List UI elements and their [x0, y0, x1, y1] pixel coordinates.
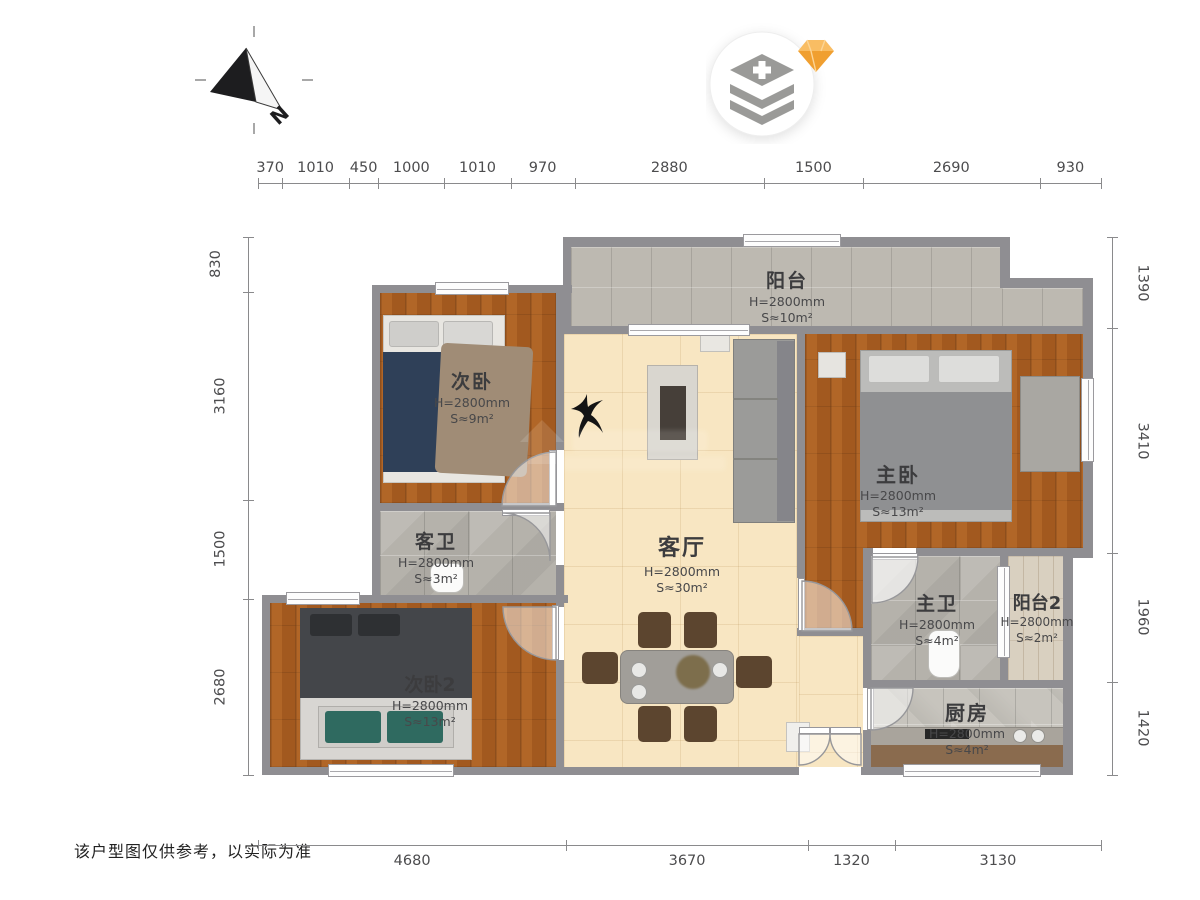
- compass: N: [190, 20, 320, 140]
- dimension-segment: 1420: [1113, 682, 1157, 775]
- dimension-value: 1000: [393, 160, 430, 176]
- pillow: [389, 321, 439, 347]
- dimension-segment: 830: [208, 237, 248, 292]
- dimension-row-bottom: 4680 3670 1320 3130: [258, 845, 1101, 874]
- wall: [372, 503, 380, 603]
- dimension-segment: 1960: [1113, 553, 1157, 682]
- room-height: H=2800mm: [899, 617, 975, 633]
- room-area: S≈10m²: [749, 310, 825, 326]
- dimension-segment: 3410: [1113, 328, 1157, 552]
- dimension-row-top: 370 1010 450 1000 1010 970 2880 1500 269…: [258, 153, 1101, 184]
- dimension-value: 3410: [1135, 422, 1151, 459]
- window: [1081, 378, 1094, 462]
- room-name: 客厅: [644, 535, 720, 564]
- room-name: 主卧: [860, 462, 936, 488]
- dimension-segment: 1010: [444, 153, 510, 183]
- dimension-segment: 3670: [566, 846, 808, 874]
- dimension-value: 1390: [1135, 264, 1151, 301]
- room-height: H=2800mm: [929, 726, 1005, 742]
- wall: [564, 767, 799, 775]
- sofa-seam: [733, 398, 778, 400]
- dimension-value: 1010: [297, 160, 334, 176]
- wall: [1063, 548, 1073, 775]
- room-label-living-room: 客厅 H=2800mm S≈30m²: [644, 535, 720, 596]
- wall: [863, 548, 871, 688]
- plate: [631, 662, 647, 678]
- room-name: 阳台: [749, 269, 825, 294]
- dimension-segment: 450: [349, 153, 379, 183]
- dimension-segment: 1320: [808, 846, 895, 874]
- dimension-value: 3160: [212, 377, 228, 414]
- dimension-value: 970: [529, 160, 557, 176]
- dimension-value: 370: [256, 160, 284, 176]
- room-height: H=2800mm: [398, 555, 474, 571]
- chair: [736, 656, 772, 688]
- pillow: [938, 355, 1000, 383]
- wall: [556, 660, 564, 775]
- room-area: S≈30m²: [644, 580, 720, 596]
- wardrobe: [1020, 376, 1080, 472]
- door-leaf: [502, 509, 550, 516]
- blanket: [383, 352, 441, 472]
- sofa-seam: [733, 458, 778, 460]
- table-plant: [676, 655, 710, 689]
- room-height: H=2800mm: [1001, 615, 1074, 631]
- watermark-text-blur: [572, 430, 708, 452]
- dimension-value: 4680: [394, 853, 431, 869]
- dimension-value: 2880: [651, 160, 688, 176]
- room-label-guest-bath: 客卫 H=2800mm S≈3m²: [398, 530, 474, 587]
- room-label-balcony2: 阳台2 H=2800mm S≈2m²: [1001, 592, 1074, 647]
- room-area: S≈4m²: [929, 742, 1005, 758]
- room-name: 阳台2: [1001, 592, 1074, 615]
- room-name: 次卧: [434, 370, 510, 395]
- room-name: 厨房: [929, 700, 1005, 726]
- room-label-kitchen: 厨房 H=2800mm S≈4m²: [929, 700, 1005, 759]
- room-label-balcony: 阳台 H=2800mm S≈10m²: [749, 269, 825, 326]
- cushion: [325, 711, 381, 743]
- wall: [863, 730, 871, 775]
- dimension-value: 1010: [459, 160, 496, 176]
- wall: [1000, 278, 1093, 288]
- wall: [262, 595, 270, 775]
- watermark-house-icon: [518, 416, 566, 468]
- window: [743, 234, 841, 247]
- dimension-value: 1420: [1135, 710, 1151, 747]
- room-area: S≈3m²: [398, 571, 474, 587]
- dimension-segment: 3130: [895, 846, 1101, 874]
- room-area: S≈9m²: [434, 411, 510, 427]
- dimension-value: 2690: [933, 160, 970, 176]
- floor-plan-page: N: [0, 0, 1200, 900]
- wall: [797, 628, 865, 636]
- dimension-value: 2680: [212, 668, 228, 705]
- dimension-value: 3670: [669, 853, 706, 869]
- room-height: H=2800mm: [749, 294, 825, 310]
- plate: [631, 684, 647, 700]
- room-height: H=2800mm: [434, 395, 510, 411]
- pillow: [868, 355, 930, 383]
- dimension-segment: 1000: [378, 153, 444, 183]
- sliding-door-window: [628, 324, 750, 336]
- dimension-segment: 1500: [764, 153, 863, 183]
- pillow: [358, 614, 400, 636]
- room-name: 次卧2: [392, 673, 468, 698]
- window: [328, 764, 454, 777]
- door-leaf: [799, 727, 830, 734]
- pillow: [310, 614, 352, 636]
- room-label-bedroom2: 次卧 H=2800mm S≈9m²: [434, 370, 510, 427]
- door-leaf: [552, 605, 559, 660]
- dimension-value: 1960: [1135, 599, 1151, 636]
- sink: [1013, 729, 1027, 743]
- dimension-value: 3130: [979, 853, 1016, 869]
- dimension-value: 1500: [212, 531, 228, 568]
- room-area: S≈4m²: [899, 633, 975, 649]
- door-leaf: [830, 727, 861, 734]
- wall: [797, 326, 805, 578]
- window: [435, 282, 509, 295]
- balcony-floor-ext: [1002, 288, 1083, 326]
- room-label-master-bedroom: 主卧 H=2800mm S≈13m²: [860, 462, 936, 521]
- dimension-column-left: 830 3160 1500 2680: [208, 237, 249, 775]
- room-height: H=2800mm: [392, 698, 468, 714]
- dimension-segment: 1390: [1113, 237, 1157, 328]
- chair: [684, 612, 717, 648]
- master-bedroom-notch-floor: [805, 548, 863, 628]
- door-leaf: [872, 553, 918, 560]
- chair: [638, 612, 671, 648]
- window: [286, 592, 360, 605]
- dimension-segment: 370: [258, 153, 282, 183]
- room-height: H=2800mm: [860, 488, 936, 504]
- dimension-segment: 930: [1040, 153, 1101, 183]
- dimension-segment: 4680: [258, 846, 566, 874]
- room-name: 客卫: [398, 530, 474, 555]
- dimension-segment: 1010: [282, 153, 348, 183]
- room-label-bedroom3: 次卧2 H=2800mm S≈13m²: [392, 673, 468, 730]
- room-area: S≈13m²: [860, 504, 936, 520]
- room-area: S≈2m²: [1001, 631, 1074, 647]
- watermark: [518, 416, 566, 468]
- dimension-column-right: 1390 3410 1960 1420: [1112, 237, 1157, 775]
- dimension-value: 1500: [795, 160, 832, 176]
- dimension-segment: 2690: [863, 153, 1040, 183]
- chair: [638, 706, 671, 742]
- dimension-segment: 2680: [208, 599, 248, 775]
- door-leaf: [867, 688, 874, 730]
- dimension-segment: 3160: [208, 292, 248, 500]
- watermark-text-blur: [562, 456, 726, 471]
- wall: [916, 548, 1093, 556]
- wall: [863, 680, 1073, 688]
- dimension-value: 450: [350, 160, 378, 176]
- door-leaf: [798, 578, 805, 631]
- sink: [1031, 729, 1045, 743]
- app-logo: [706, 22, 838, 144]
- dimension-segment: 970: [511, 153, 575, 183]
- room-name: 主卫: [899, 592, 975, 617]
- nightstand: [818, 352, 846, 378]
- dimension-value: 930: [1057, 160, 1085, 176]
- room-area: S≈13m²: [392, 714, 468, 730]
- room-height: H=2800mm: [644, 564, 720, 580]
- wall: [372, 285, 380, 511]
- dimension-value: 830: [208, 250, 224, 278]
- dimension-value: 1320: [833, 853, 870, 869]
- plate: [712, 662, 728, 678]
- wall: [556, 565, 564, 607]
- chair: [582, 652, 618, 684]
- room-label-master-bath: 主卫 H=2800mm S≈4m²: [899, 592, 975, 649]
- chair: [684, 706, 717, 742]
- dimension-segment: 2880: [575, 153, 765, 183]
- window: [903, 764, 1041, 777]
- sofa-back: [777, 341, 794, 521]
- dimension-segment: 1500: [208, 500, 248, 599]
